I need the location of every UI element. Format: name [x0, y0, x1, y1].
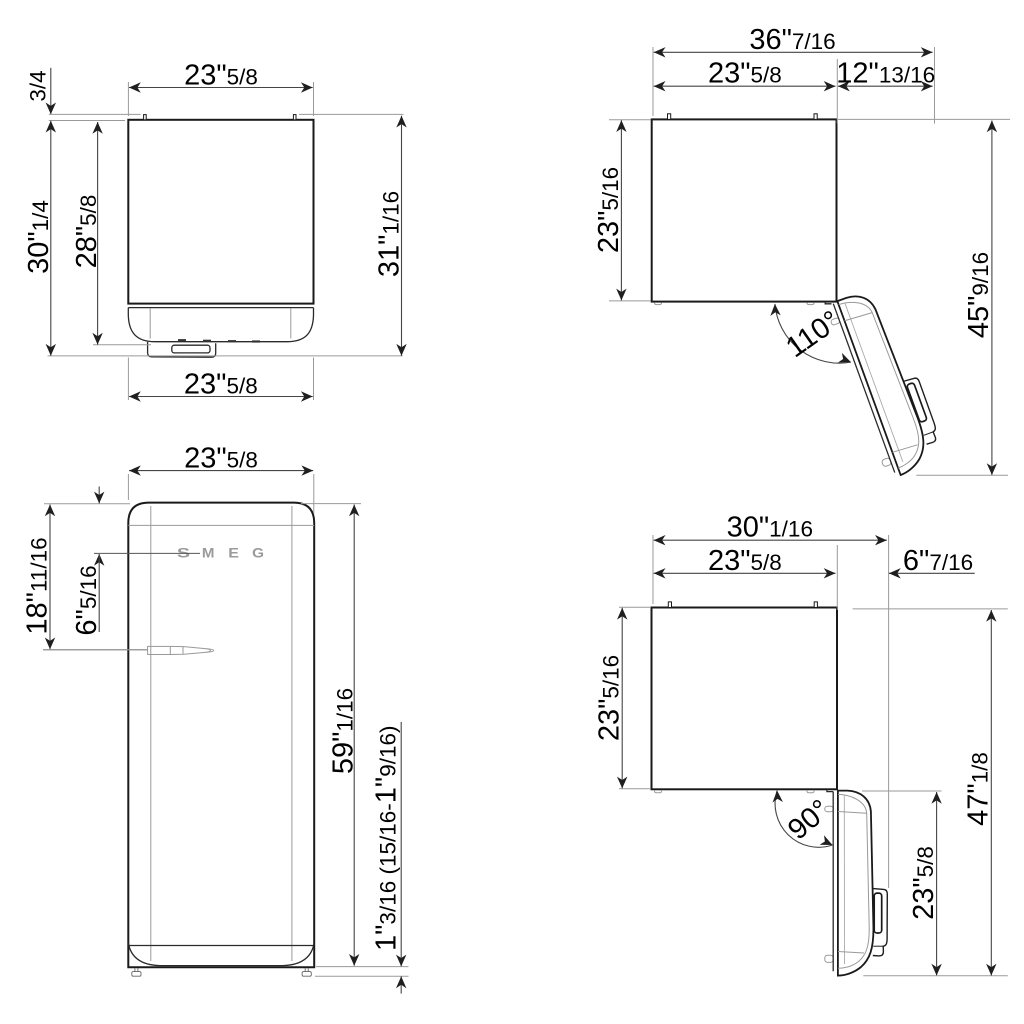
svg-text:E: E — [228, 547, 239, 562]
svg-text:M: M — [202, 546, 215, 561]
svg-text:G: G — [252, 546, 264, 561]
svg-text:6"7/16: 6"7/16 — [903, 545, 973, 577]
svg-text:3/4: 3/4 — [26, 70, 51, 101]
svg-text:28"5/8: 28"5/8 — [71, 195, 103, 269]
svg-text:23"5/8: 23"5/8 — [184, 443, 258, 475]
svg-text:23"5/16: 23"5/16 — [593, 167, 625, 253]
svg-text:45"9/16: 45"9/16 — [963, 252, 995, 338]
svg-text:47"1/8: 47"1/8 — [963, 752, 995, 826]
svg-text:23"5/16: 23"5/16 — [594, 655, 626, 741]
svg-text:30"1/16: 30"1/16 — [727, 512, 813, 544]
svg-text:23"5/8: 23"5/8 — [184, 60, 258, 92]
svg-text:12"13/16: 12"13/16 — [836, 58, 935, 90]
svg-text:6"5/16: 6"5/16 — [71, 565, 103, 635]
svg-text:23"5/8: 23"5/8 — [184, 369, 258, 401]
svg-text:30"1/4: 30"1/4 — [23, 200, 55, 274]
svg-text:59"1/16: 59"1/16 — [328, 688, 360, 774]
svg-text:23"5/8: 23"5/8 — [708, 58, 782, 90]
svg-text:31"1/16: 31"1/16 — [373, 191, 405, 277]
svg-text:36"7/16: 36"7/16 — [749, 24, 835, 56]
svg-text:23"5/8: 23"5/8 — [708, 545, 782, 577]
svg-text:23"5/8: 23"5/8 — [908, 846, 940, 920]
svg-text:18"11/16: 18"11/16 — [22, 537, 54, 634]
svg-text:1"3/16 (15/16-1"9/16): 1"3/16 (15/16-1"9/16) — [371, 725, 403, 951]
